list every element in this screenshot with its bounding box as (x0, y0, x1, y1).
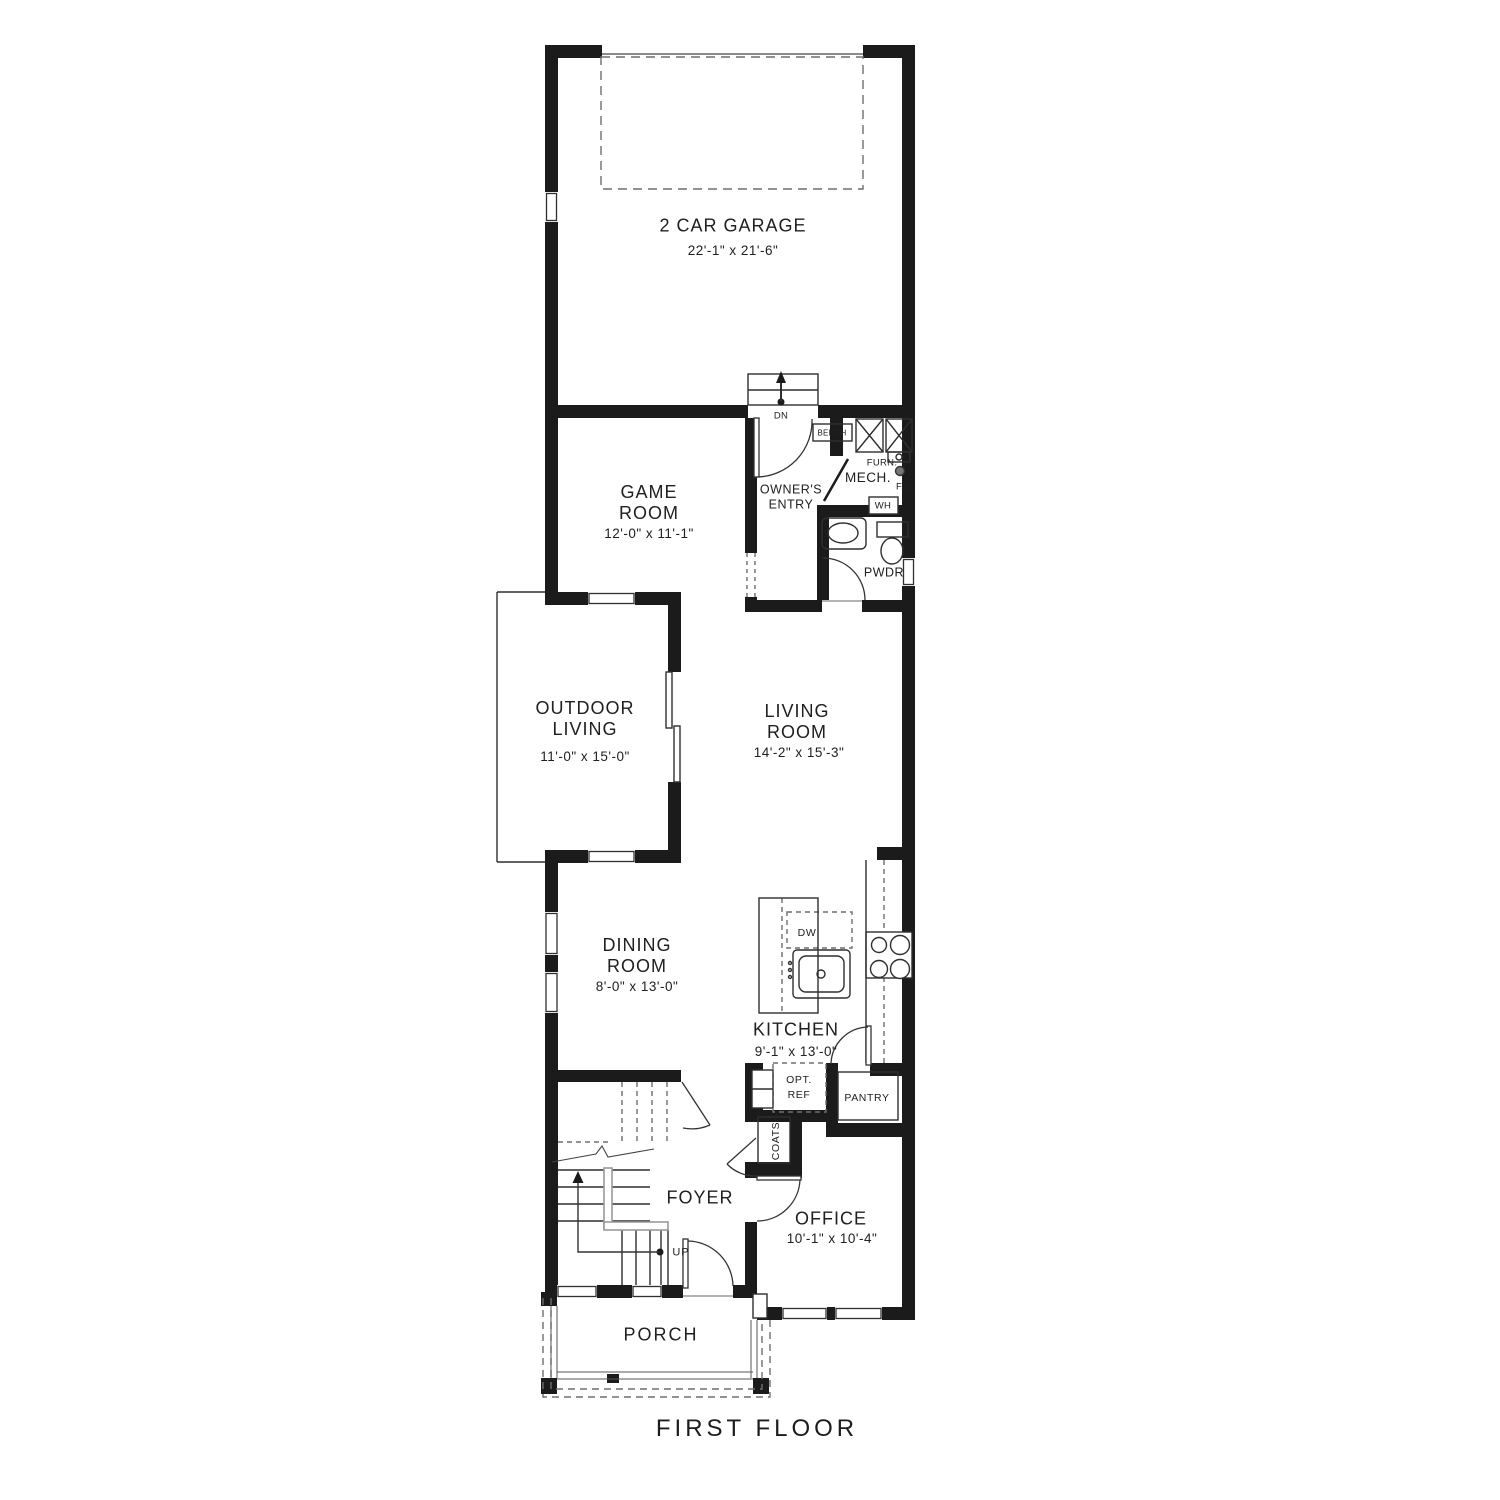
window-garage-left (545, 192, 558, 222)
stove (866, 932, 912, 979)
dn-label: DN (774, 410, 788, 421)
water-heater-label: WH (875, 500, 891, 511)
owners-entry-door (754, 418, 812, 477)
living-room-dims: 14'-2" x 15'-3" (754, 745, 845, 761)
outdoor-living-dims: 11'-0" x 15'-0" (540, 749, 630, 765)
window-office-front-1 (782, 1307, 827, 1320)
living-room-label: LIVING ROOM (755, 701, 839, 743)
kitchen-dims: 9'-1" x 13'-0" (755, 1044, 838, 1060)
garage-stair-dn (748, 371, 818, 406)
dining-hall-door (682, 1082, 710, 1129)
mech-label: MECH. (845, 470, 891, 486)
pantry-label: PANTRY (844, 1092, 889, 1104)
up-label: UP (672, 1247, 689, 1260)
window-dining-top (588, 850, 635, 863)
kitchen-island (759, 898, 850, 1013)
floor-drain-label: F.D. (896, 481, 914, 492)
window-foyer-front-1 (557, 1285, 597, 1298)
dining-room-dims: 8'-0" x 13'-0" (596, 979, 679, 995)
window-office-front-2 (835, 1307, 882, 1320)
bench-label: BENCH (817, 428, 846, 437)
window-dining-left-2 (545, 972, 558, 1013)
garage-door-dashed-zone (601, 57, 863, 189)
pwdr-label: PWDR (864, 566, 904, 581)
dining-room-label: DINING ROOM (595, 935, 679, 977)
office-dims: 10'-1" x 10'-4" (787, 1231, 878, 1247)
game-room-dims: 12'-0" x 11'-1" (604, 526, 694, 542)
coats-label: COATS (770, 1122, 782, 1160)
opt-ref-label-1: OPT. (786, 1074, 812, 1086)
outdoor-living-label: OUTDOOR LIVING (528, 698, 642, 740)
porch-label: PORCH (623, 1324, 698, 1345)
office-label: OFFICE (795, 1208, 867, 1229)
floorplan-page: 2 CAR GARAGE 22'-1" x 21'-6" GAME ROOM 1… (0, 0, 1500, 1500)
opt-ref-dashed-box (773, 1063, 826, 1112)
sliding-door (666, 672, 680, 782)
dishwasher-label: DW (798, 927, 817, 939)
furn-label: FURN. (867, 457, 898, 468)
window-game-room (588, 592, 635, 605)
garage-label: 2 CAR GARAGE (623, 215, 843, 236)
window-foyer-front-2 (632, 1285, 662, 1298)
cased-opening-game-room (747, 553, 755, 597)
stair-break-line (552, 1146, 654, 1162)
plan-title: FIRST FLOOR (656, 1415, 858, 1443)
porch-column (753, 1294, 767, 1318)
opt-ref-label-2: REF (788, 1089, 811, 1101)
garage-dims: 22'-1" x 21'-6" (688, 243, 779, 259)
foyer-label: FOYER (666, 1187, 733, 1208)
owners-entry-label: OWNER'S ENTRY (744, 482, 838, 512)
stairs-upper-flight-dashed (622, 1082, 667, 1142)
front-door (683, 1239, 733, 1288)
window-dining-left-1 (545, 912, 558, 955)
game-room-label: GAME ROOM (607, 482, 691, 524)
kitchen-label: KITCHEN (753, 1019, 839, 1040)
pwdr-door (823, 558, 865, 600)
porch-outline-outer (543, 1298, 770, 1397)
ref-side-cabinet (752, 1070, 773, 1108)
